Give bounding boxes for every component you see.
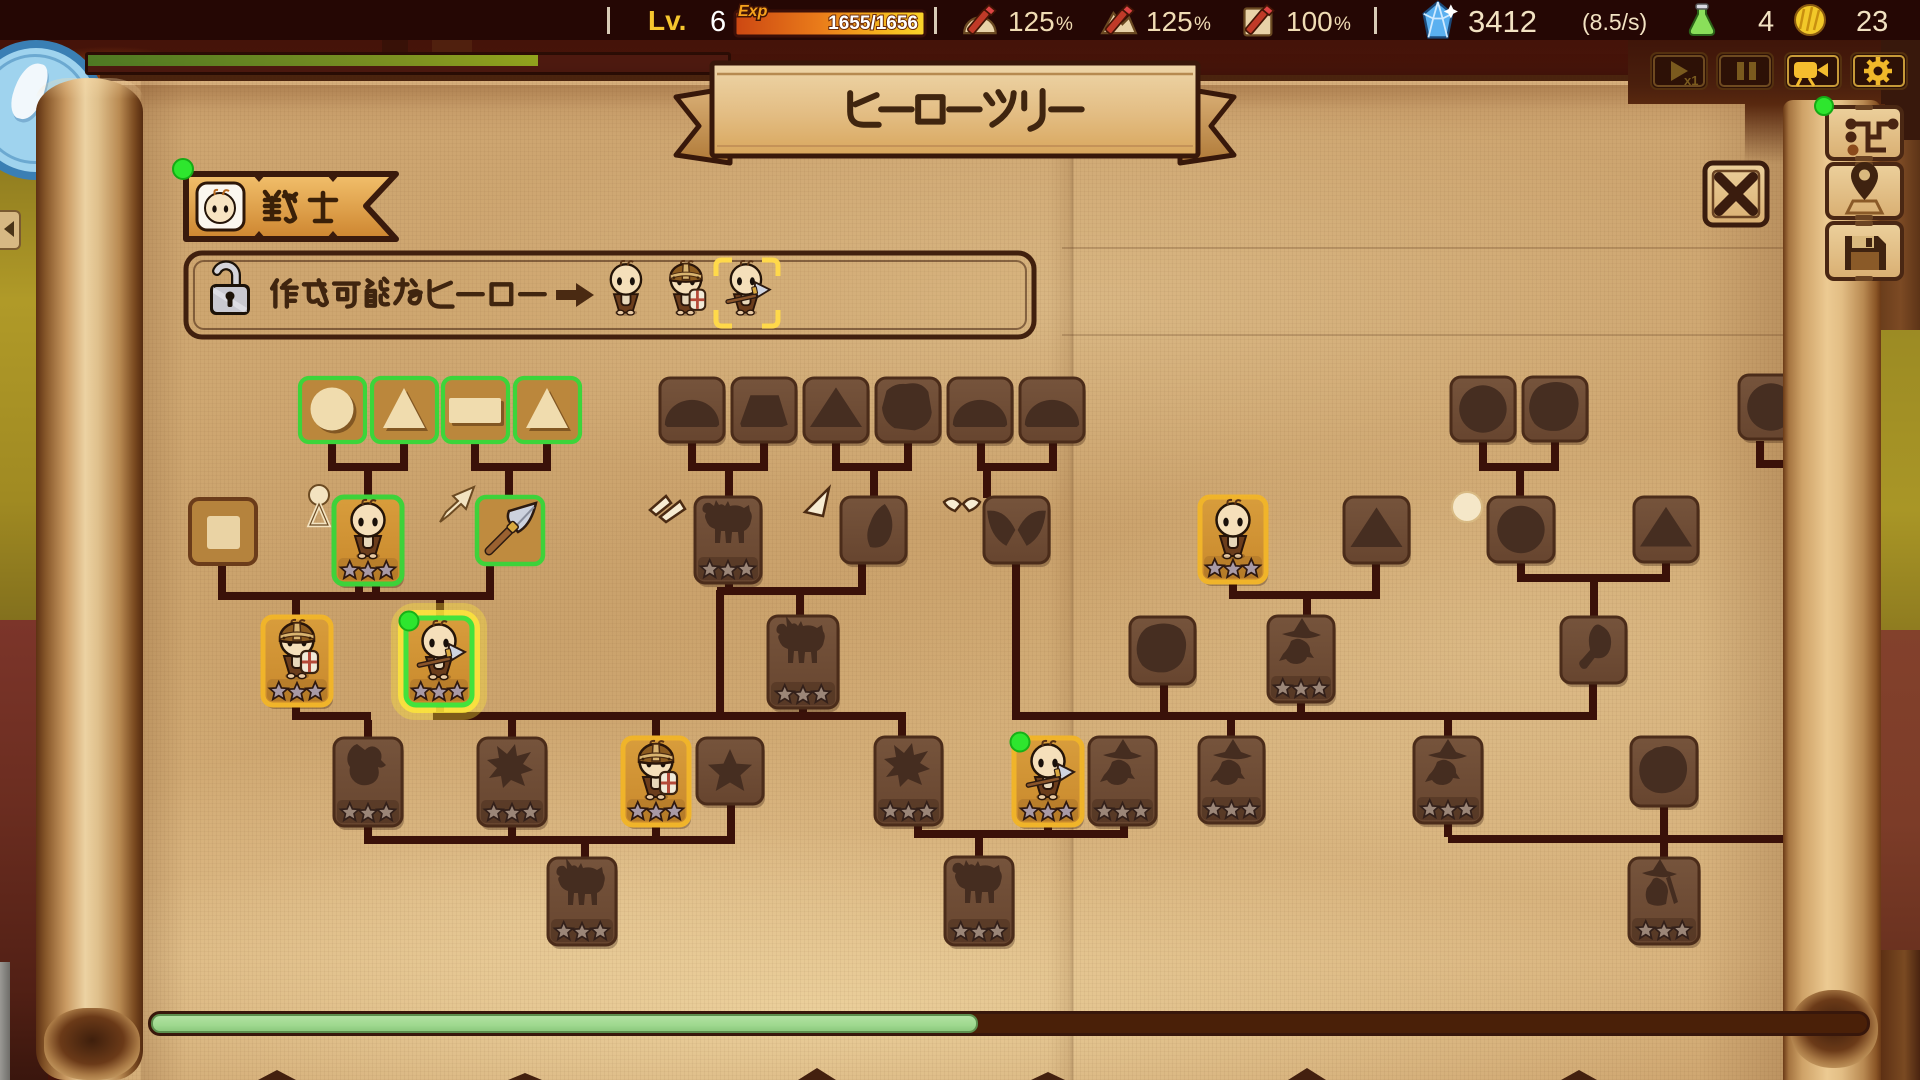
- svg-text:Exp: Exp: [738, 3, 768, 20]
- svg-text:125: 125: [1008, 6, 1055, 37]
- svg-text:23: 23: [1856, 6, 1888, 38]
- svg-text:3412: 3412: [1468, 4, 1537, 39]
- svg-text:125: 125: [1146, 6, 1193, 37]
- svg-text:4: 4: [1758, 6, 1774, 38]
- svg-text:100: 100: [1286, 6, 1333, 37]
- svg-text:%: %: [1056, 14, 1073, 35]
- svg-text:1655/1656: 1655/1656: [828, 13, 918, 34]
- svg-text:%: %: [1194, 14, 1211, 35]
- svg-text:(8.5/s): (8.5/s): [1582, 9, 1647, 35]
- svg-text:%: %: [1334, 14, 1351, 35]
- svg-text:Lv.: Lv.: [648, 5, 686, 36]
- svg-text:6: 6: [710, 6, 726, 38]
- svg-text:x1: x1: [1684, 73, 1698, 88]
